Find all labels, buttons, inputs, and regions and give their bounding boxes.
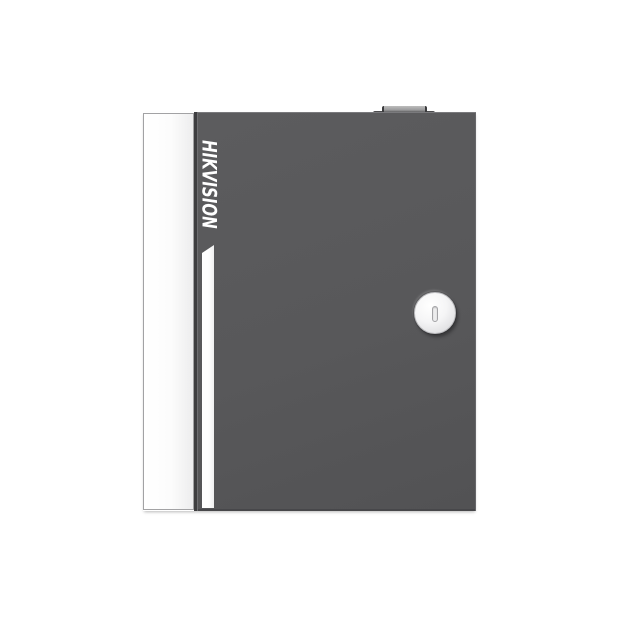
door-lock: [414, 292, 456, 334]
brand-logo: HIKVISION: [199, 140, 218, 229]
keyhole-icon: [432, 306, 438, 322]
side-panel: [143, 113, 194, 510]
product-photo: HIKVISION: [0, 0, 620, 620]
decor-stripe: [202, 245, 214, 508]
front-door-panel: HIKVISION: [194, 112, 476, 511]
device-enclosure: HIKVISION: [143, 112, 476, 511]
